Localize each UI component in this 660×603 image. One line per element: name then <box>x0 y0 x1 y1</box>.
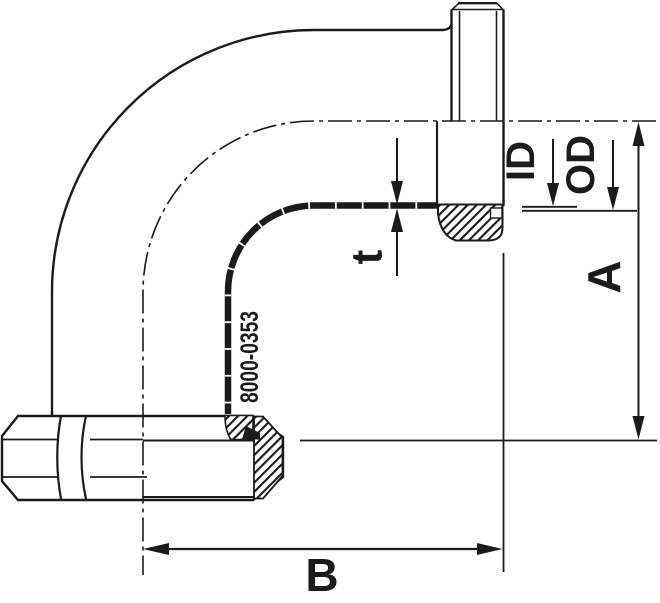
dim-a: A <box>300 122 657 441</box>
part-number-label: 8000-0353 <box>236 311 264 403</box>
dim-b-arrow-left <box>143 543 169 555</box>
technical-drawing: t ID OD A B 8000-0353 <box>0 0 660 603</box>
thread-relief-notch <box>491 208 503 218</box>
drawing-sheet: t ID OD A B 8000-0353 <box>0 0 660 603</box>
nut-slot-right-edge <box>82 416 87 499</box>
dim-od-label: OD <box>559 135 603 195</box>
dim-t-arrow-down <box>391 181 403 205</box>
nut-wall-section-hatched <box>254 417 283 499</box>
male-thread-fitting <box>437 3 504 240</box>
dim-a-label: A <box>578 260 630 293</box>
od-arrow-head <box>607 187 619 210</box>
dim-id-label: ID <box>499 141 543 181</box>
dim-t-label: t <box>343 249 392 264</box>
dim-id-od: ID OD <box>499 135 637 211</box>
dim-t-arrow-up <box>391 209 403 233</box>
nut-slot-left-edge <box>57 416 61 499</box>
dim-b-label: B <box>305 549 338 601</box>
dim-a-arrow-down <box>633 416 645 440</box>
dim-b-arrow-right <box>477 543 503 555</box>
id-arrow-head <box>547 183 559 206</box>
dim-b: B <box>143 253 504 601</box>
dim-a-arrow-up <box>633 122 645 146</box>
